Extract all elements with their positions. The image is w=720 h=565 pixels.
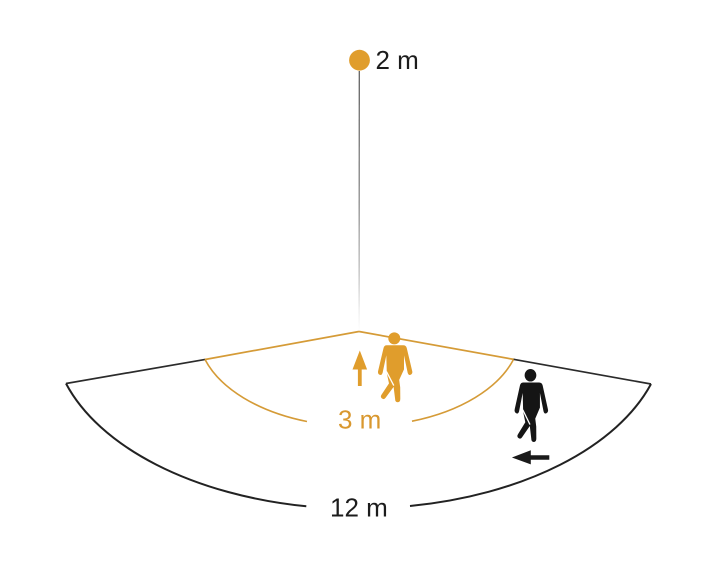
svg-text:3 m: 3 m xyxy=(338,405,381,435)
svg-text:12 m: 12 m xyxy=(330,493,388,523)
svg-text:2 m: 2 m xyxy=(376,45,419,75)
